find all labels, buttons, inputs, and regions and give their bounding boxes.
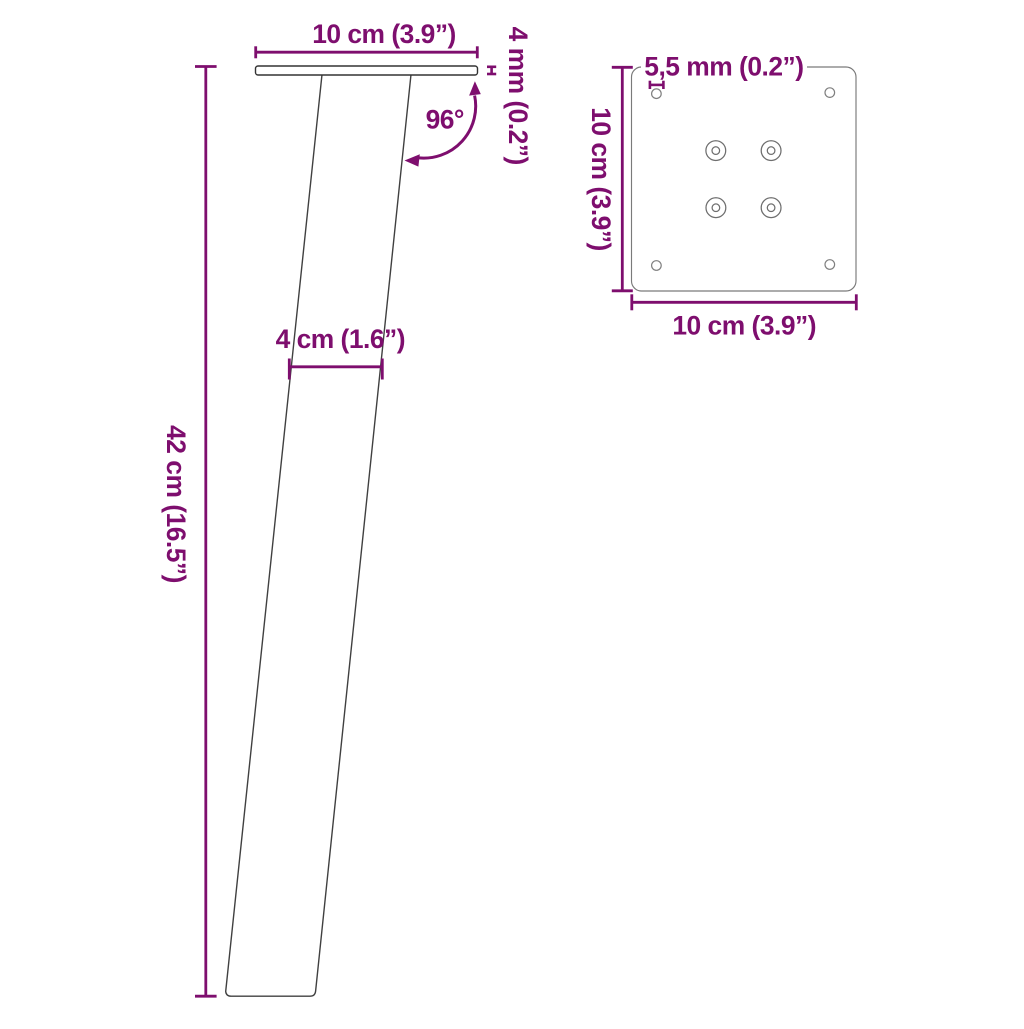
svg-text:10 cm (3.9”): 10 cm (3.9”) [312,19,456,49]
svg-text:4 mm (0.2”): 4 mm (0.2”) [503,27,533,165]
svg-text:5,5 mm (0.2”): 5,5 mm (0.2”) [644,52,803,82]
svg-text:96°: 96° [426,104,464,134]
svg-text:10 cm (3.9”): 10 cm (3.9”) [586,107,616,251]
svg-text:10 cm (3.9”): 10 cm (3.9”) [672,311,816,341]
svg-text:4 cm (1.6”): 4 cm (1.6”) [276,324,405,354]
svg-text:42 cm (16.5”): 42 cm (16.5”) [161,425,191,583]
